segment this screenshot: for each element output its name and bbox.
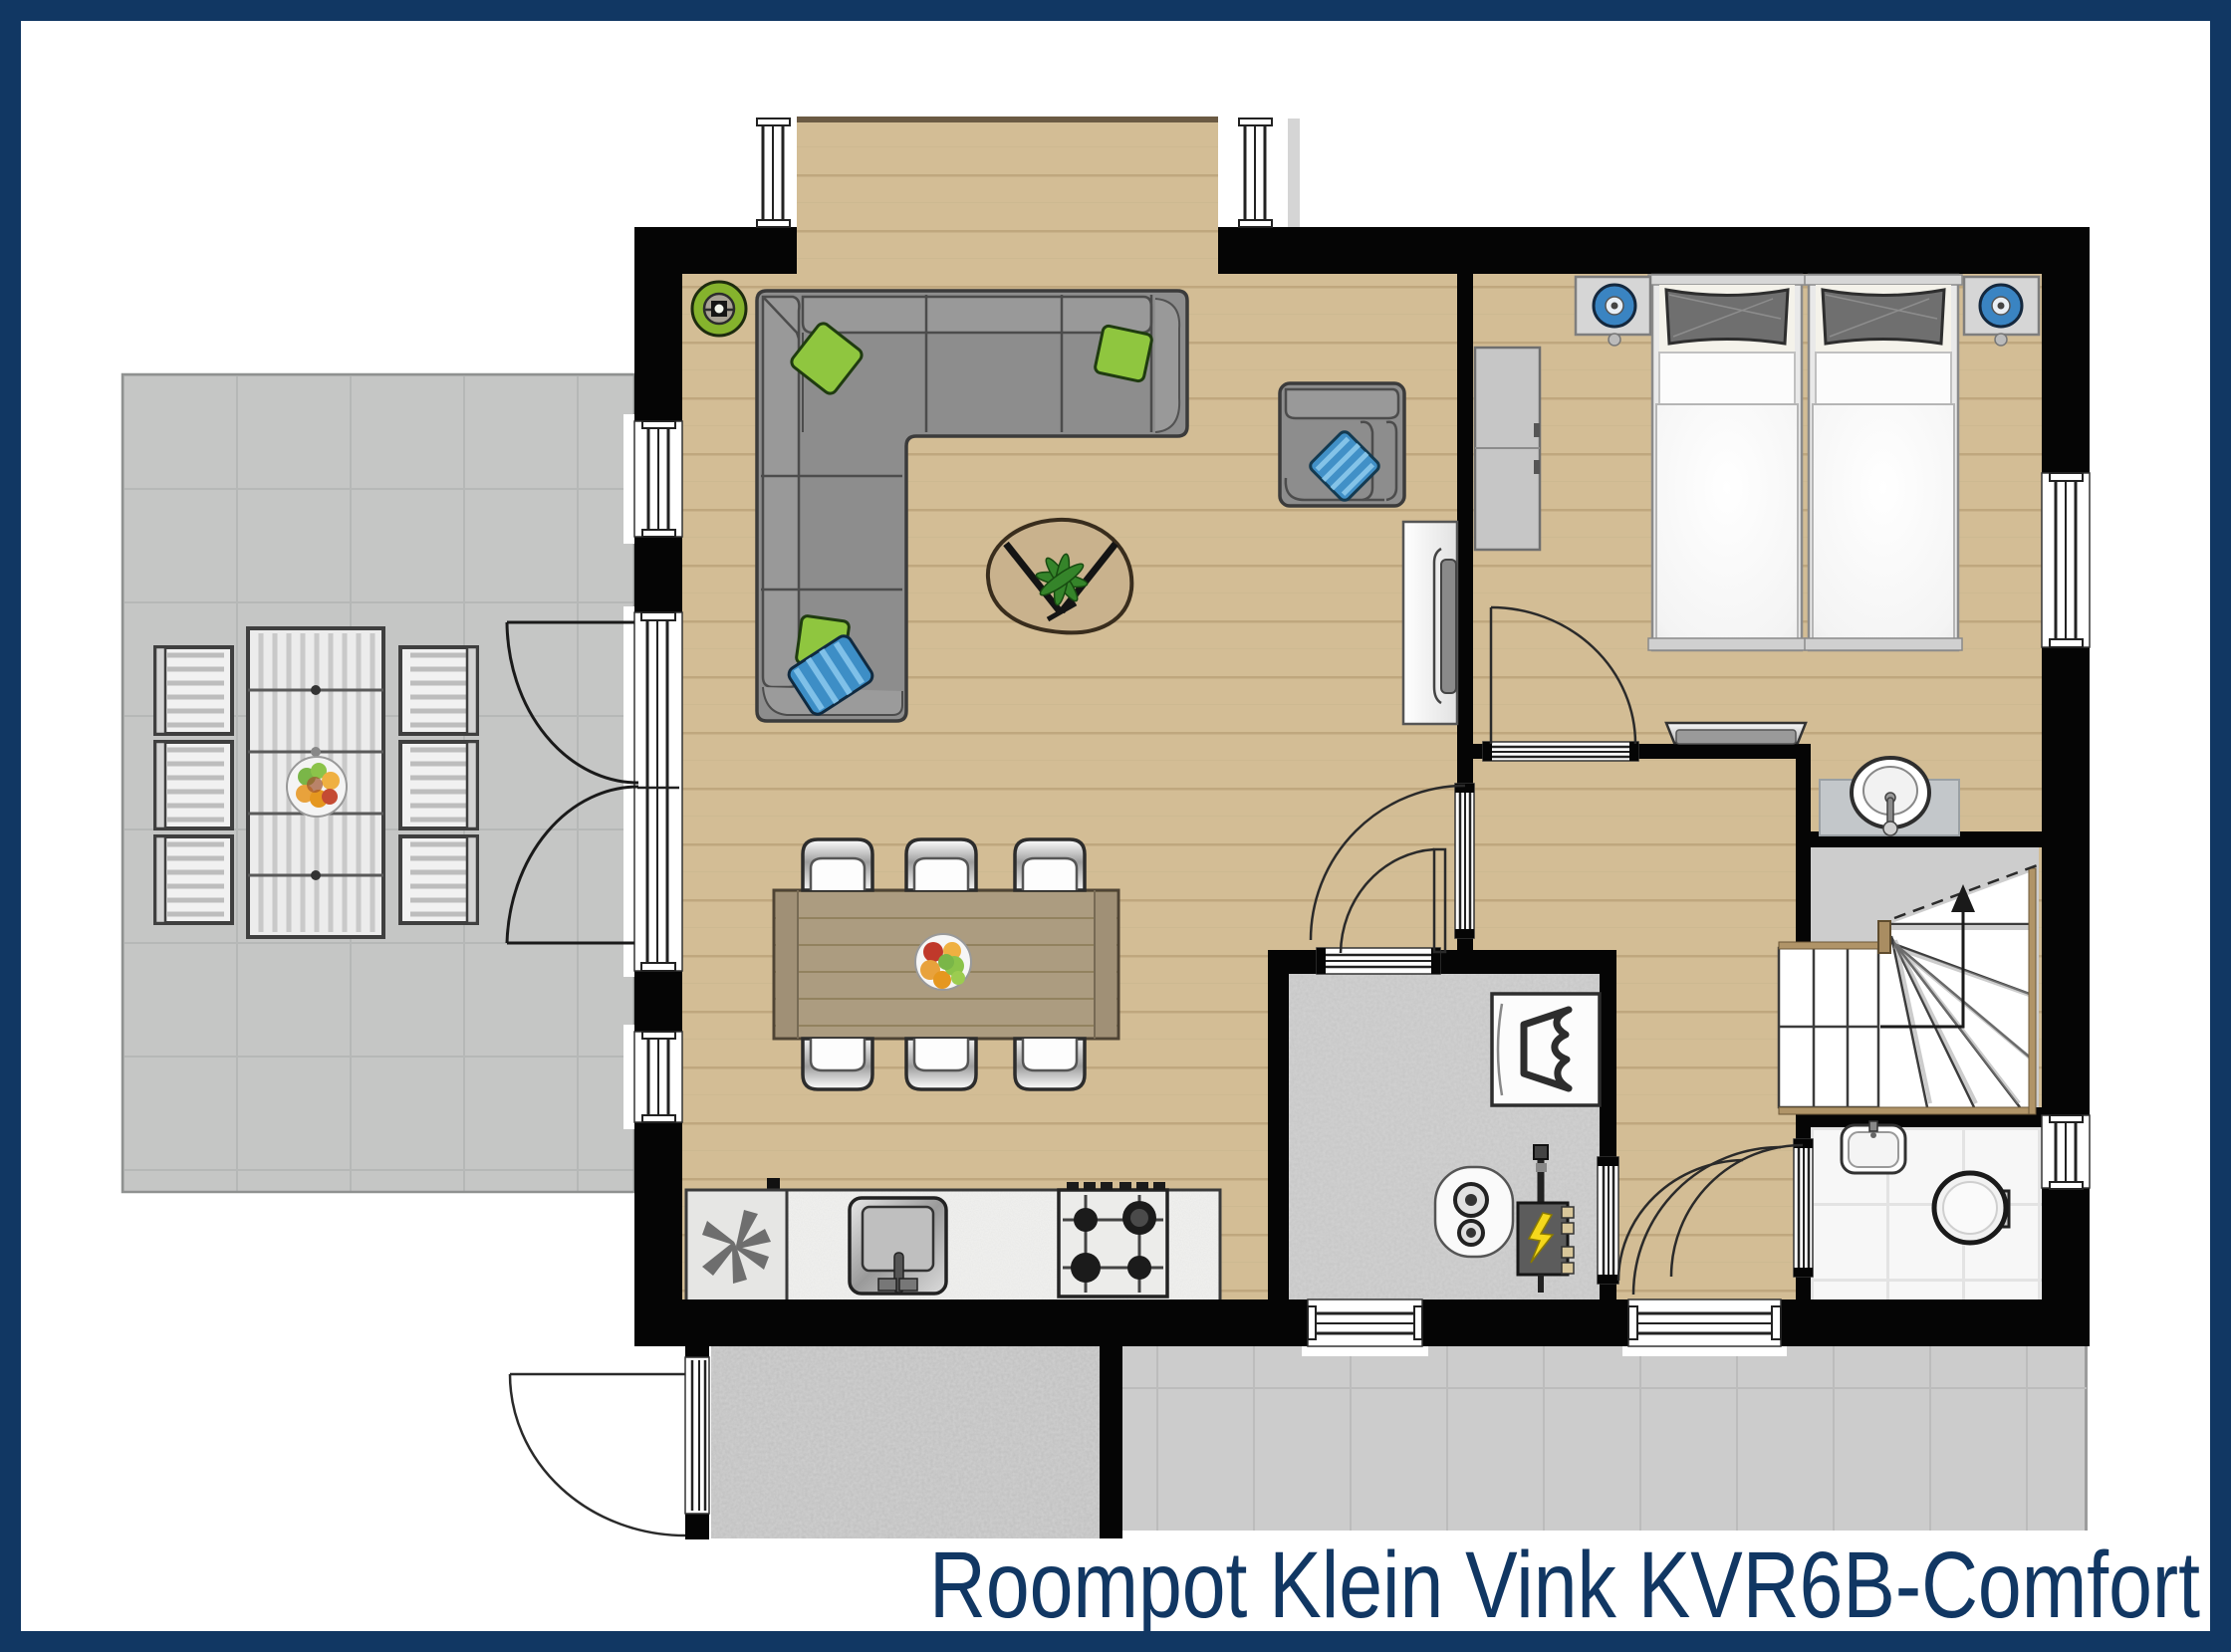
- svg-text:Roompot Klein Vink KVR6B-Comfo: Roompot Klein Vink KVR6B-Comfort: [929, 1533, 2200, 1638]
